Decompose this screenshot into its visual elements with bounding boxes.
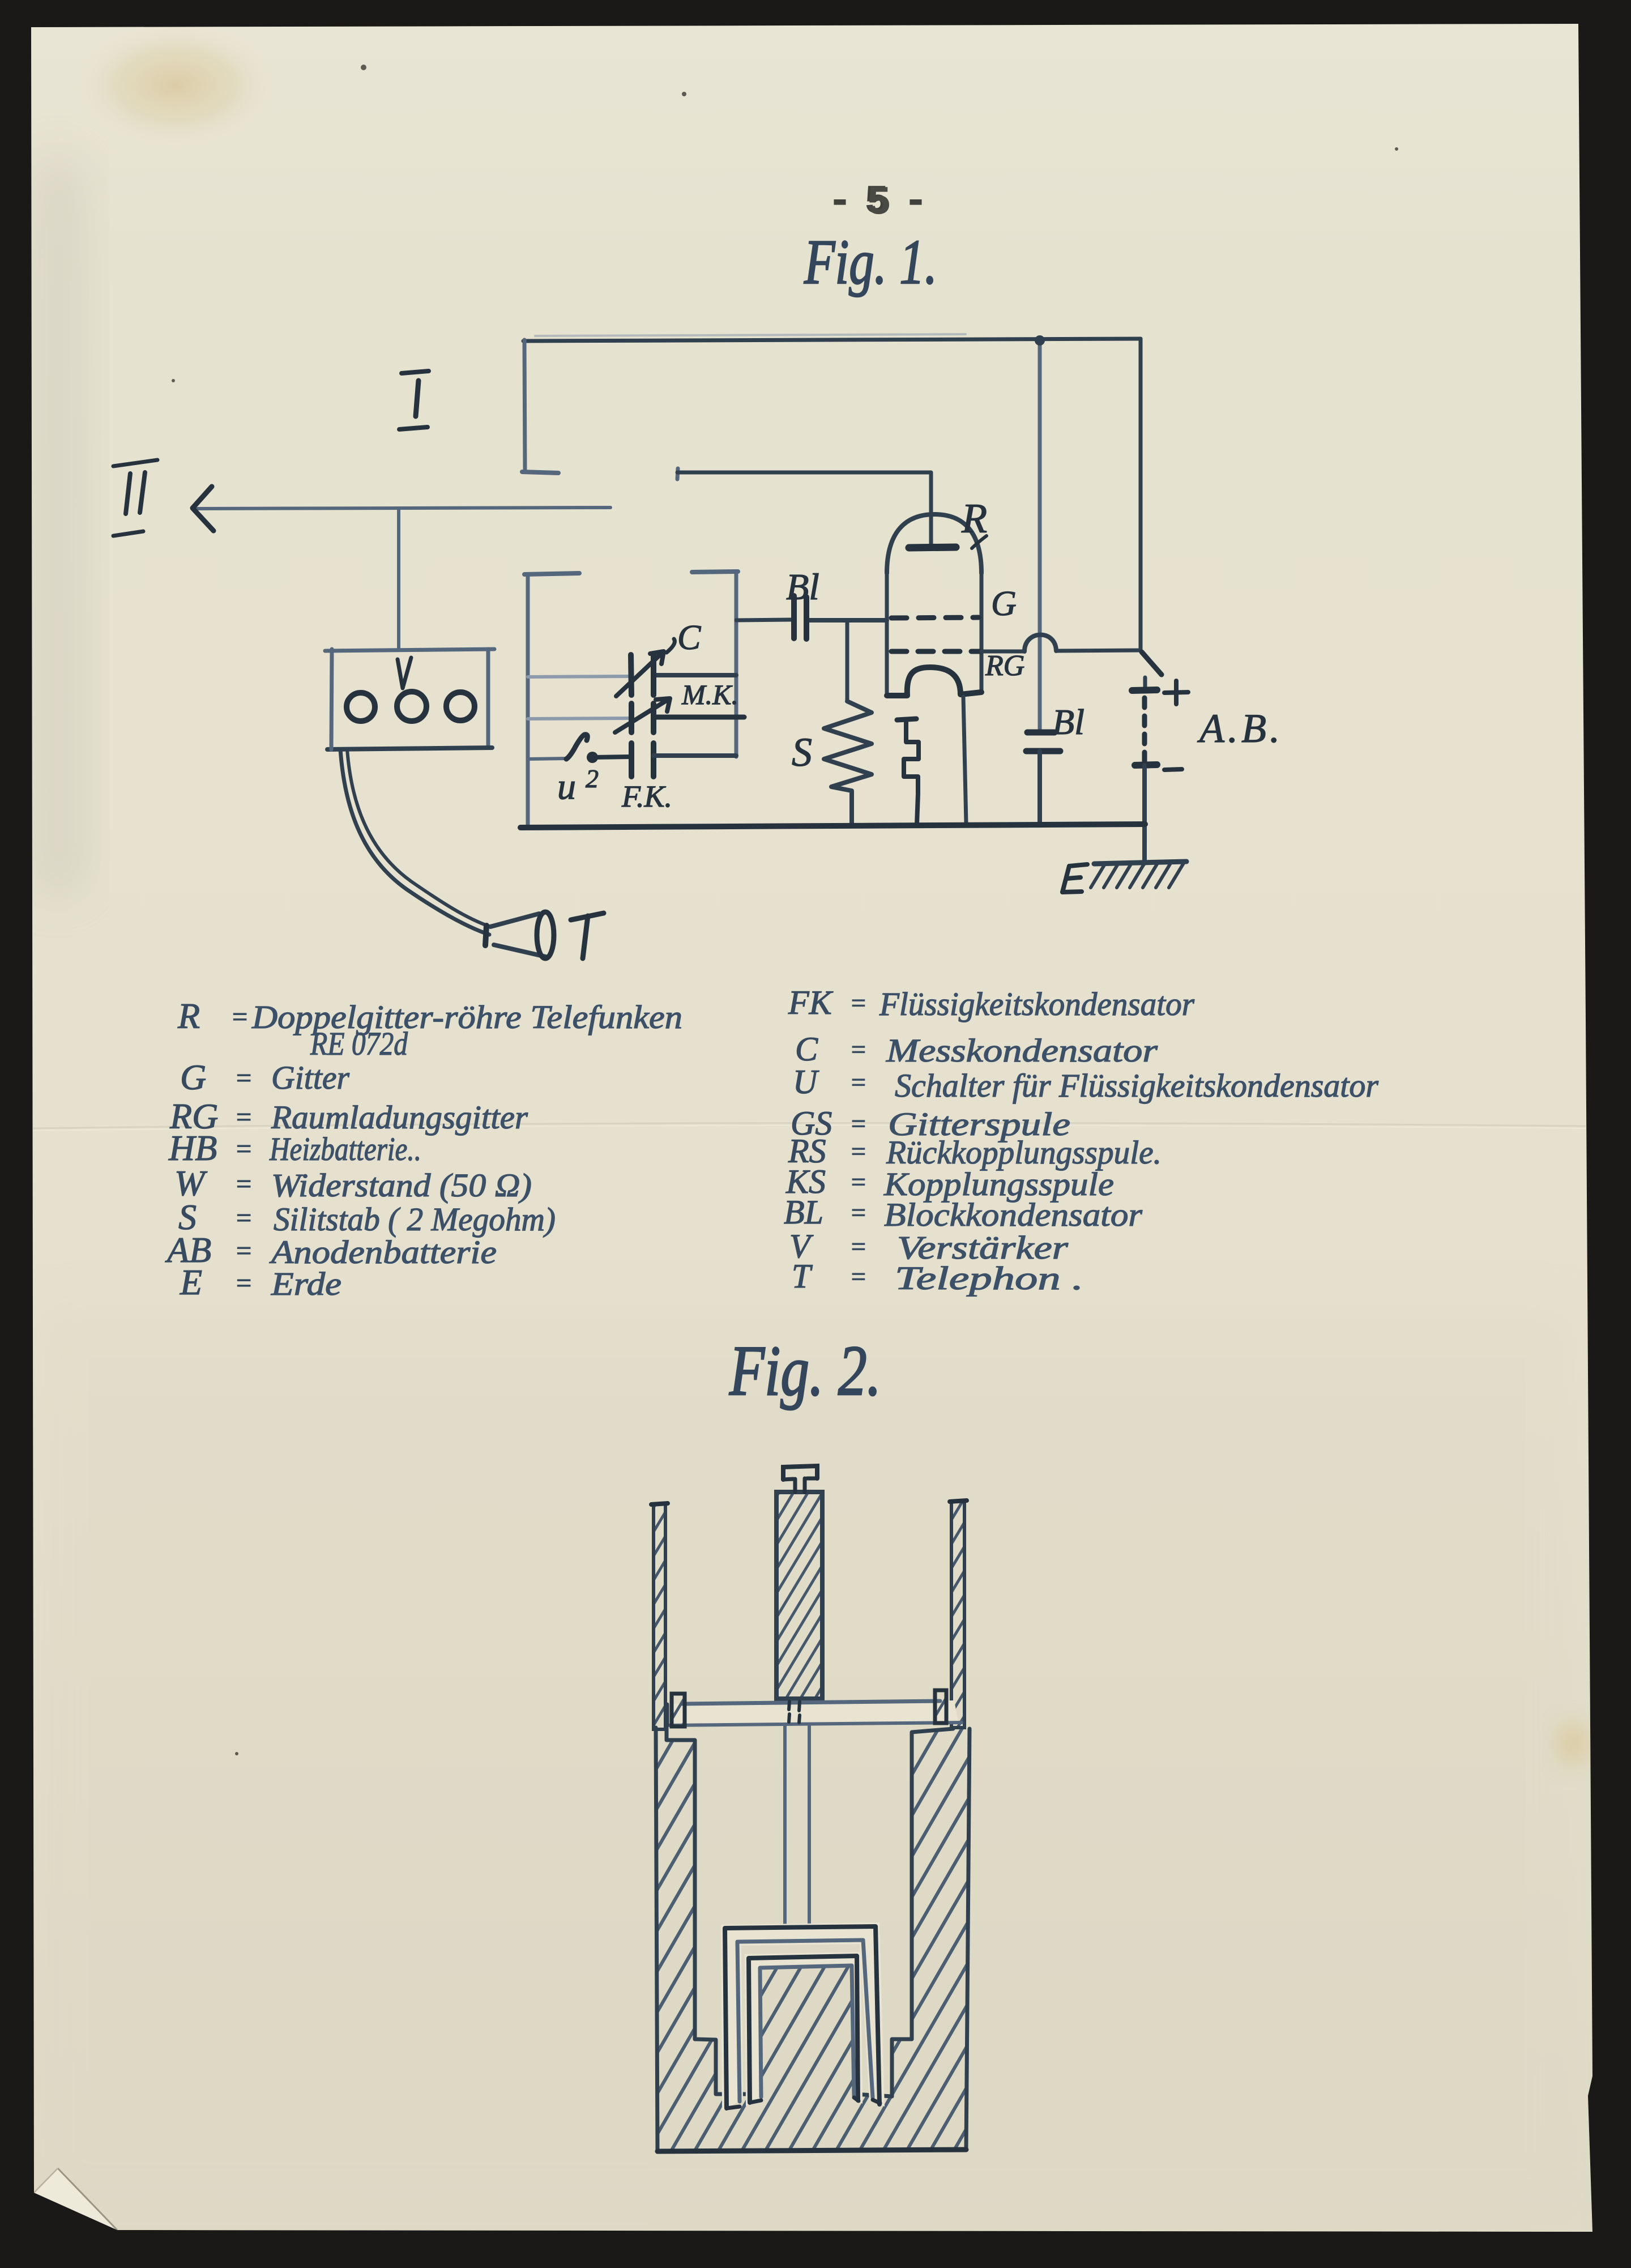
svg-text:Fig. 1.: Fig. 1.	[804, 227, 937, 297]
svg-text:=: =	[849, 1262, 867, 1291]
svg-text:Blockkondensator: Blockkondensator	[884, 1196, 1142, 1233]
svg-text:Silitstab ( 2 Megohm): Silitstab ( 2 Megohm)	[274, 1201, 556, 1238]
svg-text:=: =	[849, 1035, 867, 1064]
svg-text:A.B.: A.B.	[1197, 706, 1283, 751]
svg-text:=: =	[849, 1109, 867, 1138]
svg-text:=: =	[234, 1268, 253, 1298]
svg-text:F.K.: F.K.	[621, 779, 672, 813]
svg-text:T: T	[792, 1257, 813, 1295]
svg-text:-: -	[904, 180, 928, 225]
svg-text:=: =	[234, 1236, 253, 1266]
svg-text:Schalter für Flüssigkeitskonde: Schalter für Flüssigkeitskondensator	[895, 1067, 1378, 1104]
svg-text:Bl: Bl	[1052, 702, 1085, 742]
svg-text:=: =	[234, 1203, 253, 1233]
svg-text:=: =	[234, 1134, 253, 1164]
svg-text:5: 5	[867, 181, 891, 226]
svg-text:RE 072d: RE 072d	[310, 1025, 408, 1062]
svg-text:Bl: Bl	[786, 566, 819, 608]
svg-text:=: =	[230, 1002, 249, 1032]
svg-text:=: =	[849, 1137, 867, 1166]
svg-text:M.K.: M.K.	[681, 679, 738, 710]
svg-text:U: U	[793, 1063, 819, 1101]
svg-text:E: E	[180, 1262, 202, 1302]
svg-text:Heizbatterie..: Heizbatterie..	[269, 1131, 421, 1167]
svg-text:=: =	[849, 1068, 867, 1097]
svg-text:FK: FK	[788, 984, 834, 1021]
svg-text:S: S	[792, 730, 812, 775]
svg-text:Messkondensator: Messkondensator	[886, 1032, 1158, 1069]
svg-text:G: G	[180, 1057, 206, 1097]
svg-text:-: -	[828, 180, 852, 225]
svg-text:C: C	[677, 619, 701, 657]
svg-text:=: =	[849, 1198, 867, 1227]
svg-text:Erde: Erde	[271, 1265, 341, 1302]
svg-text:G: G	[991, 585, 1017, 623]
svg-text:=: =	[849, 988, 867, 1017]
svg-text:2: 2	[586, 764, 599, 793]
svg-text:Widerstand (50 Ω): Widerstand (50 Ω)	[271, 1167, 532, 1204]
svg-text:BL: BL	[784, 1193, 823, 1231]
svg-text:=: =	[234, 1102, 253, 1132]
svg-text:u: u	[557, 766, 576, 807]
svg-text:R: R	[961, 496, 987, 542]
svg-text:Flüssigkeitskondensator: Flüssigkeitskondensator	[879, 986, 1194, 1022]
svg-text:Fig. 2.: Fig. 2.	[729, 1332, 881, 1410]
svg-text:Gitter: Gitter	[271, 1059, 349, 1096]
svg-text:=: =	[849, 1167, 867, 1196]
svg-text:Telephon .: Telephon .	[895, 1260, 1083, 1297]
svg-text:HB: HB	[168, 1128, 217, 1168]
svg-text:=: =	[849, 1232, 867, 1261]
svg-text:RG: RG	[985, 650, 1024, 682]
svg-text:=: =	[234, 1169, 253, 1199]
svg-text:=: =	[234, 1063, 253, 1093]
svg-text:C: C	[795, 1030, 818, 1068]
svg-text:R: R	[177, 996, 200, 1036]
